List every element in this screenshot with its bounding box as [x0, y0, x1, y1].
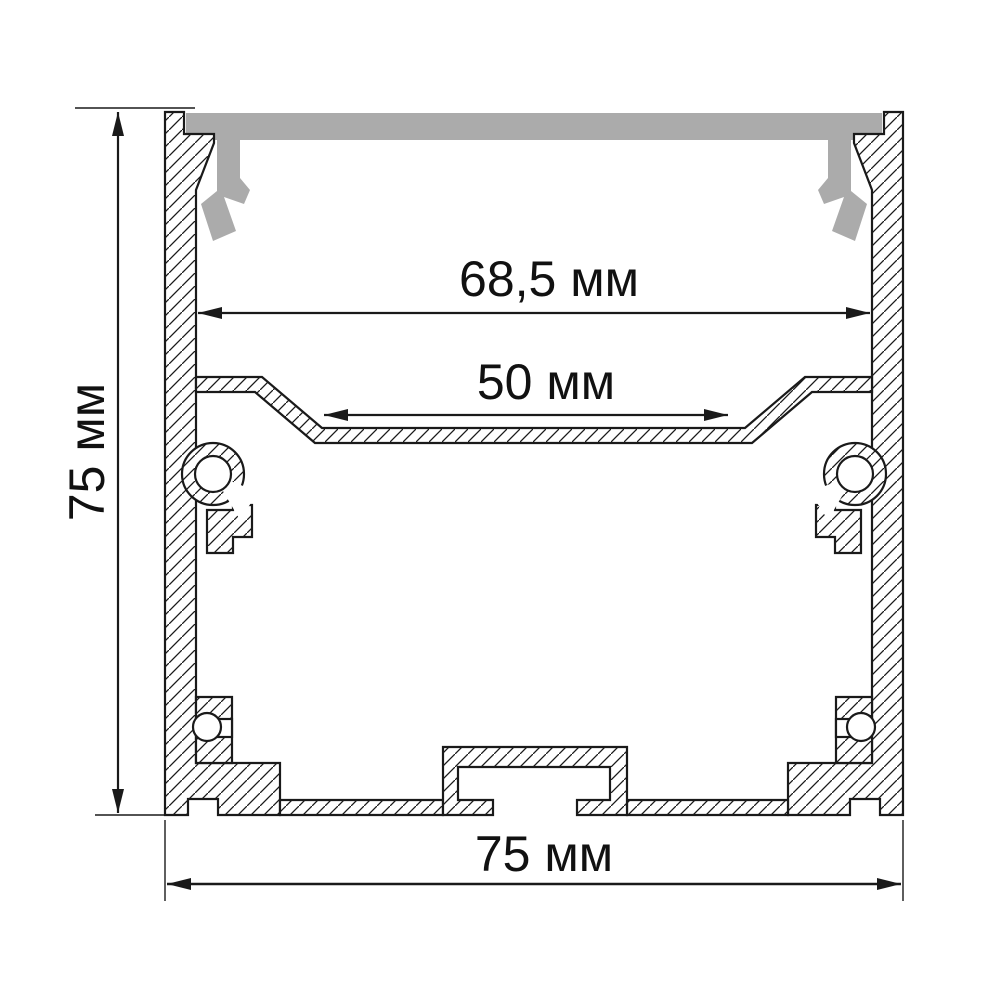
- label-height: 75 мм: [59, 383, 115, 521]
- bottom-web-left: [280, 800, 443, 815]
- bottom-right-screw-hole: [847, 713, 875, 741]
- label-channel-width: 50 мм: [477, 354, 615, 410]
- label-top-inner-width: 68,5 мм: [459, 251, 639, 307]
- diffuser-cover-plate: [186, 113, 882, 140]
- left-screw-hole: [195, 456, 231, 492]
- right-screw-hole: [837, 456, 873, 492]
- profile-cross-section-drawing: 68,5 мм 50 мм 75 мм 75 мм: [0, 0, 1001, 1001]
- label-bottom-width: 75 мм: [475, 826, 613, 882]
- bottom-left-screw-hole: [193, 713, 221, 741]
- technical-drawing-page: 68,5 мм 50 мм 75 мм 75 мм: [0, 0, 1001, 1001]
- bottom-web-right: [627, 800, 788, 815]
